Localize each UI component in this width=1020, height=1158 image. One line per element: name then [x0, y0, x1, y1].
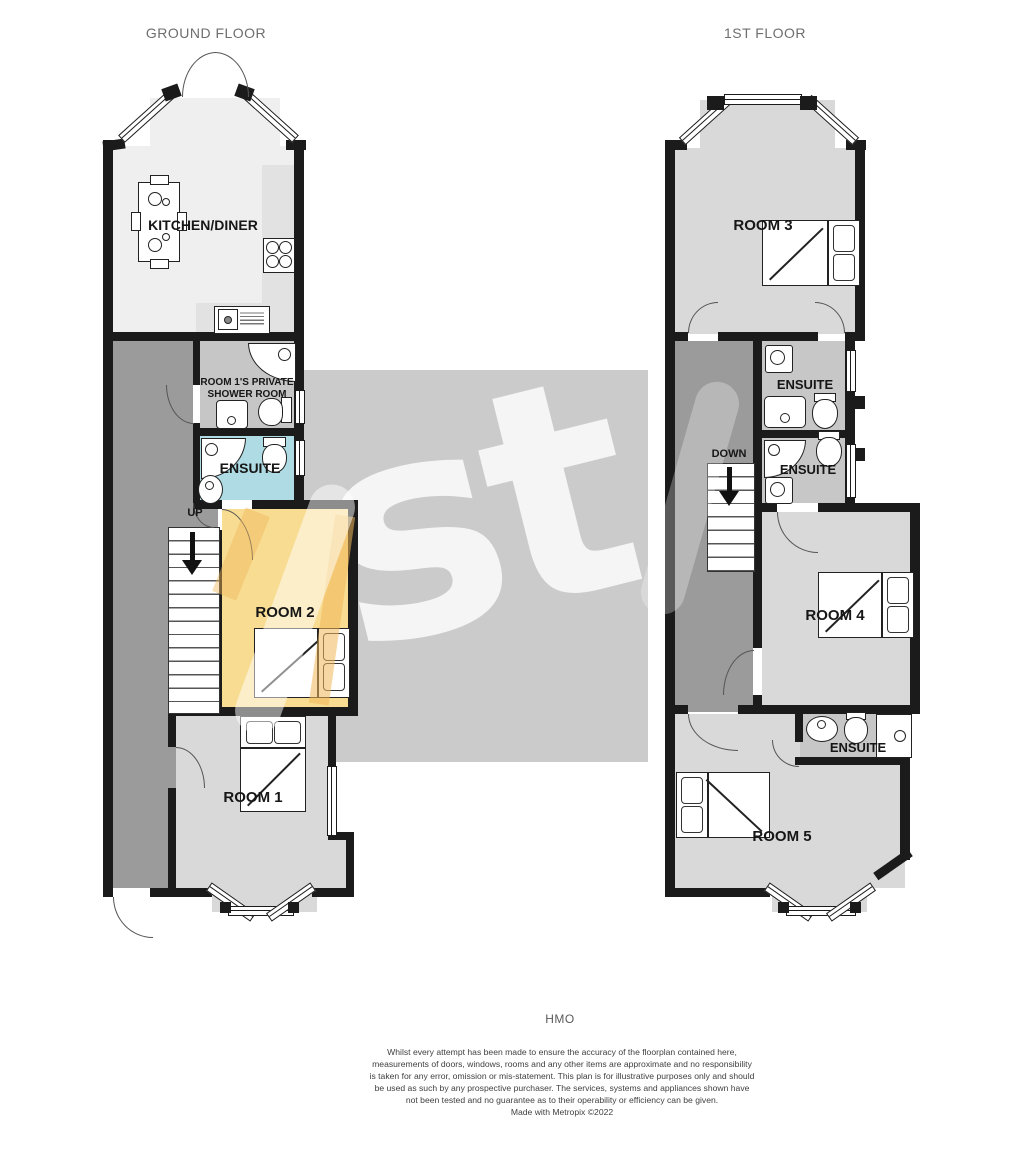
gf-front-door-arc	[113, 897, 153, 938]
metropix-credit: Made with Metropix ©2022	[511, 1107, 613, 1117]
room2-label: ROOM 2	[235, 604, 335, 622]
ff-ensuite-mid-shower-head	[768, 444, 780, 456]
ground-floor-title: GROUND FLOOR	[118, 25, 294, 41]
plate-icon-bottom	[148, 238, 162, 252]
ff-ensuite-bottom-basin-tap	[817, 720, 826, 729]
hob-burner-4	[279, 255, 292, 268]
ff-ensuite-right-block-1	[845, 396, 865, 409]
ff-room5-bay-post-right	[850, 902, 861, 913]
gf-bottom-wall-right	[312, 888, 354, 897]
ff-ensuite-top-label: ENSUITE	[757, 377, 853, 393]
ff-room4-top-wall-b	[818, 503, 920, 512]
room4-bed-icon	[818, 572, 914, 638]
disclaimer-text: Whilst every attempt has been made to en…	[368, 1046, 756, 1118]
ff-stairs-arrow-head	[719, 491, 739, 506]
ff-ensuite-bottom-label: ENSUITE	[812, 740, 904, 756]
gf-shower-basin-tap	[227, 416, 236, 425]
hob-burner-3	[266, 255, 279, 268]
kitchen-label: KITCHEN/DINER	[123, 217, 283, 234]
gf-wall-top-right-stub	[286, 140, 306, 150]
gf-room1-bay-post-left	[220, 902, 231, 913]
cup-icon-bottom	[162, 233, 170, 241]
gf-ensuite-basin-tap	[205, 481, 214, 490]
ff-room5-top-wall-a	[675, 705, 688, 714]
room2-bed-icon	[254, 628, 350, 698]
ff-ensuite-bottom-left-wall	[795, 714, 803, 742]
gf-room1-step-wall-v	[346, 832, 354, 892]
ff-room3-bottom-wall-b	[718, 332, 818, 341]
gf-room2-top-wall-b	[252, 500, 358, 509]
ff-stairs-arrow-stem	[727, 467, 732, 491]
first-floor-title: 1ST FLOOR	[690, 25, 840, 41]
ff-ensuite-top-basin-small-bowl	[770, 350, 785, 365]
gf-stairs-arrow-head	[182, 560, 202, 575]
gf-ensuite-label: ENSUITE	[200, 460, 300, 477]
ff-room5-top-wall-b	[738, 705, 920, 714]
gf-room1-bay-post-right	[288, 902, 299, 913]
shower-room-label: ROOM 1'S PRIVATE SHOWER ROOM	[191, 377, 303, 401]
ff-ensuite-mid-label: ENSUITE	[760, 462, 856, 478]
floorplan-canvas: GROUND FLOOR 1ST FLOOR st	[0, 0, 1020, 1158]
gf-wall-left	[103, 140, 113, 897]
ff-ensuite-top-toilet-bowl	[812, 399, 838, 429]
gf-stairs-label: UP	[180, 507, 210, 520]
room3-label: ROOM 3	[713, 217, 813, 235]
gf-room1-right-window	[327, 766, 337, 836]
ff-stairs-label: DOWN	[705, 448, 753, 461]
gf-french-door-right-arc	[215, 52, 249, 97]
gf-wall-kitchen-bottom	[103, 332, 304, 341]
kitchen-sink-drain	[224, 316, 232, 324]
room4-label: ROOM 4	[785, 607, 885, 625]
ff-ensuite-top-basin-tap	[780, 413, 790, 423]
hmo-label: HMO	[460, 1012, 660, 1026]
ff-room4-top-wall-a	[753, 503, 777, 512]
gf-french-door-left-arc	[182, 52, 216, 97]
kitchen-drainer-lines	[240, 310, 264, 327]
ff-room5-bay-post-left	[778, 902, 789, 913]
ff-ensuite-bottom-bottom-wall	[795, 757, 910, 765]
plate-icon-top	[148, 192, 162, 206]
gf-shower-ensuite-divider	[193, 428, 302, 436]
cup-icon-top	[162, 198, 170, 206]
gf-room1-left-wall-a	[168, 716, 176, 747]
room5-label: ROOM 5	[732, 828, 832, 846]
disclaimer-body: Whilst every attempt has been made to en…	[370, 1047, 755, 1105]
dining-chair-bottom-icon	[150, 259, 169, 269]
gf-shower-toilet-bowl-icon	[258, 398, 283, 426]
dining-chair-top-icon	[150, 175, 169, 185]
ff-bay-window-center	[724, 94, 802, 105]
gf-shower-head-icon	[278, 348, 291, 361]
hob-burner-2	[279, 241, 292, 254]
gf-bottom-wall-left	[150, 888, 212, 897]
gf-room1-left-wall-b	[168, 788, 176, 890]
ff-ensuite-top-basin-big	[764, 396, 806, 428]
room1-label: ROOM 1	[203, 789, 303, 807]
ff-bottom-wall-left	[665, 888, 770, 897]
ff-wall-left	[665, 140, 675, 897]
gf-stairs-arrow-stem	[190, 532, 195, 560]
gf-ensuite-shower-head-icon	[205, 443, 218, 456]
hob-burner-1	[266, 241, 279, 254]
ff-bay-post-right	[800, 96, 817, 110]
ff-ensuite-mid-basin-bowl	[770, 482, 785, 497]
ff-bay-post-left	[707, 96, 724, 110]
ff-room3-bottom-wall-a	[665, 332, 688, 341]
